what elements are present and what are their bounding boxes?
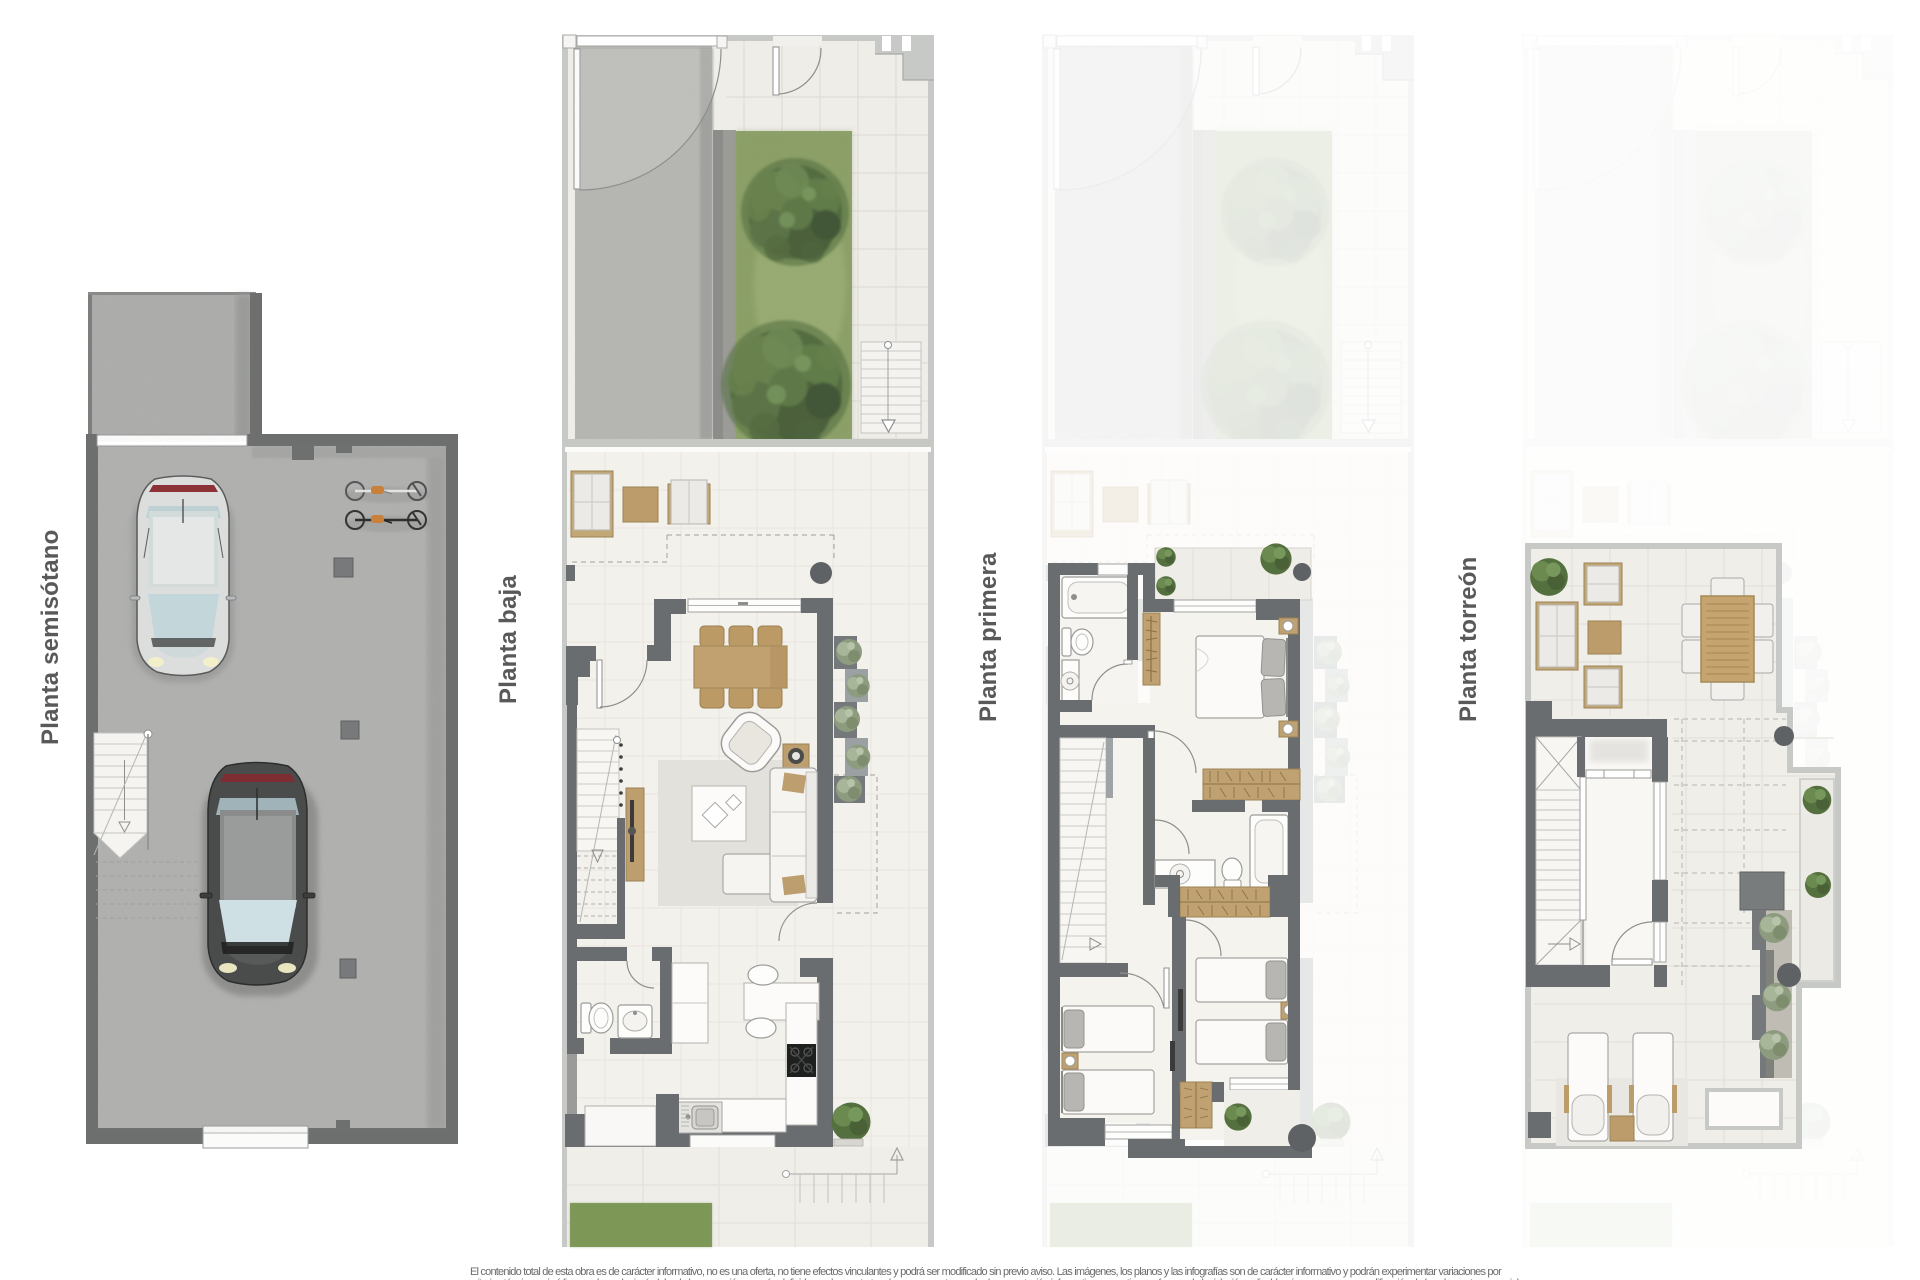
svg-text:Planta baja: Planta baja <box>495 575 522 704</box>
svg-text:El contenido total de esta obr: El contenido total de esta obra es de ca… <box>470 1266 1502 1278</box>
svg-text:Planta primera: Planta primera <box>975 552 1002 722</box>
svg-text:Planta semisótano: Planta semisótano <box>37 530 64 745</box>
svg-text:Planta torreón: Planta torreón <box>1455 557 1482 723</box>
